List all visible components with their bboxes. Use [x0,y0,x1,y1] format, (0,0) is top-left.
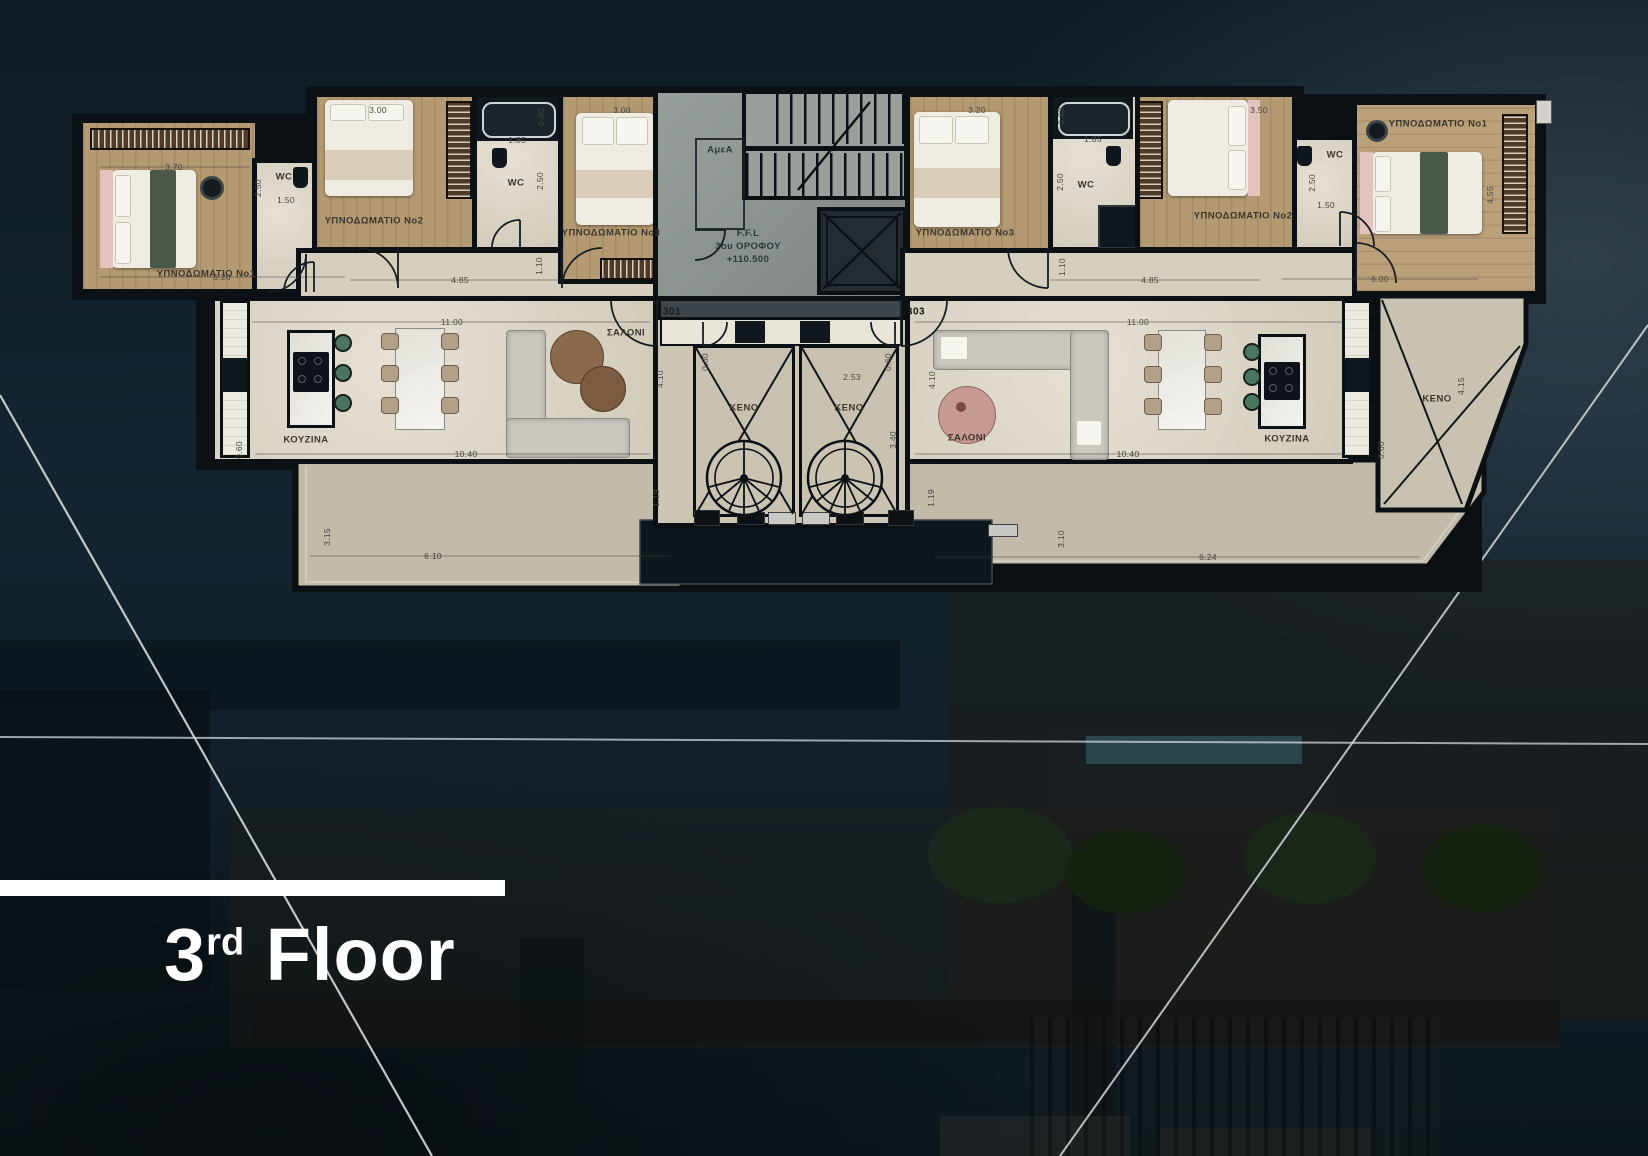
label-wc2-left: WC [508,178,525,188]
page-title: 3rd Floor [164,912,456,997]
dim-label: 10.40 [455,450,478,459]
dim-label: 4.85 [451,276,469,285]
label-void-right: ΚΕΝΟ [834,403,863,413]
dim-label: 0.60 [701,353,710,371]
dim-label: 1.19 [652,489,661,507]
dim-label: 6.10 [424,552,442,561]
label-bedroom1-right: ΥΠΝΟΔΩΜΑΤΙΟ Νο1 [1389,119,1488,129]
dim-label: 3.40 [889,431,898,449]
dim-label: 1.10 [1058,258,1067,276]
dim-label: 1.50 [277,196,295,205]
dim-label: 1.85 [1084,135,1102,144]
dim-label: 6.24 [1199,553,1217,562]
dim-label: 11.00 [441,318,463,327]
label-wc1-left: WC [276,172,293,182]
dim-label: 0.60 [1377,441,1386,459]
dim-label: 4.10 [656,370,665,388]
title-word: Floor [266,913,456,996]
dim-label: 3.00 [369,106,387,115]
dim-label: 4.55 [1486,186,1495,204]
dim-label: 1.50 [1317,201,1335,210]
dim-label: 4.10 [928,371,937,389]
label-bedroom3-left: ΥΠΝΟΔΩΜΑΤΙΟ Νο3 [562,228,661,238]
dim-label: 0.80 [1057,107,1066,125]
dim-label: 3.20 [968,106,986,115]
dim-label: 6.20 [213,273,231,282]
label-wc2-right: WC [1327,150,1344,160]
dim-label: 2.50 [536,172,545,190]
dim-label: 2.50 [254,179,263,197]
page: { "title": { "number": "3", "suffix": "r… [0,0,1648,1156]
label-bedroom1-left: ΥΠΝΟΔΩΜΑΤΙΟ Νο1 [157,269,256,279]
label-kitchen-right: ΚΟΥΖΙΝΑ [1264,434,1309,444]
label-bedroom2-right: ΥΠΝΟΔΩΜΑΤΙΟ Νο2 [1194,211,1293,221]
label-living-right: ΣΑΛΟΝΙ [948,433,986,443]
dim-label: 0.60 [884,353,893,371]
dim-label: 1.85 [508,136,526,145]
dim-label: 3.00 [613,106,631,115]
dim-label: 2.50 [1308,174,1317,192]
dim-label: 4.85 [1141,276,1159,285]
label-bedroom2-left: ΥΠΝΟΔΩΜΑΤΙΟ Νο2 [325,216,424,226]
label-void-left: ΚΕΝΟ [729,403,758,413]
label-void-far-right: ΚΕΝΟ [1422,394,1451,404]
label-wc1-right: WC [1078,180,1095,190]
dim-label: 3.15 [323,528,332,546]
title-divider-bar [0,880,505,896]
dim-label: 0.80 [537,108,546,126]
label-kitchen-left: ΚΟΥΖΙΝΑ [283,435,328,445]
title-number: 3 [164,913,206,996]
dim-label: 1.19 [927,489,936,507]
label-living-left: ΣΑΛΟΝΙ [607,328,645,338]
dim-label: 3.10 [1057,530,1066,548]
dim-label: 6.00 [1371,275,1389,284]
unit-303: 303 [907,307,925,318]
label-bedroom3-right: ΥΠΝΟΔΩΜΑΤΙΟ Νο3 [916,228,1015,238]
dim-label: 2.53 [843,373,861,382]
dim-label: 3.70 [165,163,183,172]
dim-label: 2.50 [1056,173,1065,191]
dim-label: 10.40 [1117,450,1140,459]
dim-label: 3.50 [1250,106,1268,115]
dim-label: 1.10 [535,257,544,275]
dim-label: 4.15 [1457,377,1466,395]
dim-label: 11.00 [1127,318,1149,327]
title-ordinal: rd [206,921,244,963]
dim-label: 0.60 [235,441,244,459]
unit-301: 301 [663,307,681,318]
